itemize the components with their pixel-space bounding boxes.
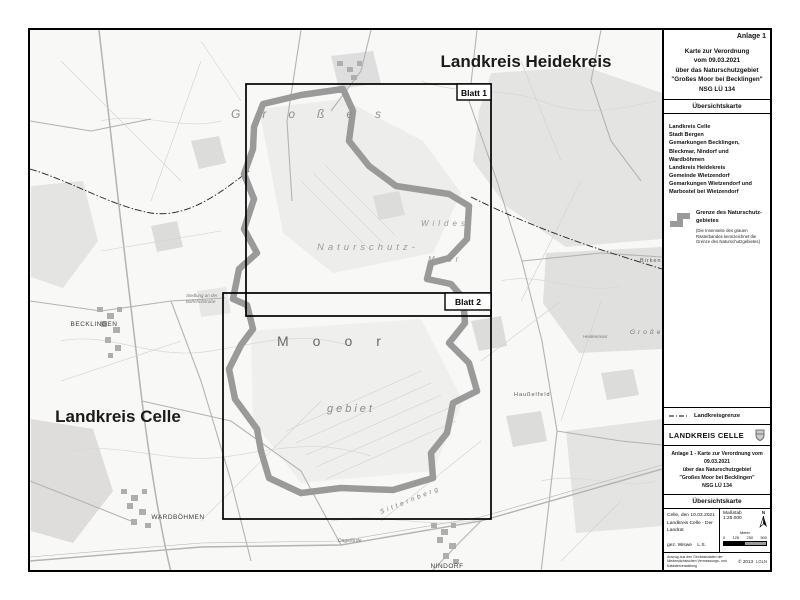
copyright-line: Niedersächsischen Vermessungs- und Katas… [667,559,735,568]
tick: 250 [747,535,754,540]
jurisdiction-line: Gemarkungen Becklingen, [669,139,765,147]
label-dagefoerde: Dageförde [338,538,362,544]
jurisdiction-line: Landkreis Celle [669,123,765,131]
signature: gez. Wiswe [667,542,692,549]
legend-label-line: Grenze des Naturschutz- [696,210,765,218]
forest-patches [31,51,662,543]
tick: 0 [723,535,725,540]
label-landkreis-heidekreis: Landkreis Heidekreis [440,52,611,71]
title-line: "Großes Moor bei Becklingen" [668,75,766,84]
lgln-logo-icon: LGLN [756,559,767,564]
title-line: über das Naturschutzgebiet [668,66,766,75]
nsg-boundary-symbol-icon [669,212,691,228]
jurisdiction-line: Stadt Bergen [669,131,765,139]
imprint-right: Maßstab 1:25.000 N Meter 0 125 250 500 [719,509,770,551]
copyright-strip: Auszug aus den Geobasisdaten der Nieders… [664,552,770,570]
legend-label-line: gebietes [696,218,765,226]
label-gebiet: gebiet [327,403,375,415]
legend-note: (Die Innenseite des grauen Rasterbandes … [696,228,765,245]
map-title: Karte zur Verordnung vom 09.03.2021 über… [668,47,766,94]
title-block-line: NSG LÜ 134 [666,482,768,490]
label-birken: Birken [640,258,662,264]
title-block-line: Anlage 1 - Karte zur Verordnung vom 09.0… [666,450,768,466]
imprint-office: Landkreis Celle - Der Landrat [667,520,716,535]
anlage-label: Anlage 1 [668,33,766,40]
title-block-line: "Großes Moor bei Becklingen" [666,474,768,482]
jurisdiction-line: Bleckmar, Nindorf und Wardböhmen [669,148,765,164]
section-title-uebersichtskarte: Übersichtskarte [664,99,770,113]
label-grosses-right: Großes [630,329,662,336]
landkreis-celle-crest-icon [755,429,765,441]
title-line: Karte zur Verordnung [668,47,766,56]
legend-panel: Anlage 1 Karte zur Verordnung vom 09.03.… [662,30,770,570]
blatt2-label: Blatt 2 [455,297,481,307]
copyright-text: Auszug aus den Geobasisdaten der Nieders… [667,555,735,568]
label-nindorf: NINDORF [430,563,463,570]
label-wardboehmen: WARDBÖHMEN [151,513,204,521]
jurisdiction-line: Gemeinde Wietzendorf [669,172,765,180]
tick: 500 [760,535,767,540]
imprint-block: Celle, den 10.03.2021 Landkreis Celle - … [664,508,770,551]
scalebar-black-segment [724,542,745,545]
label-grosses-top: Großes [231,107,403,121]
label-naturschutz: Naturschutz- [317,242,419,253]
imprint-date: Celle, den 10.03.2021 [667,512,716,519]
overview-map-canvas: Blatt 1 Blatt 2 Landkreis Heidekreis Lan… [30,30,662,570]
legend-landkreisgrenze: Landkreisgrenze [664,407,770,424]
settlement-becklingen [97,307,122,358]
map-sheet: Blatt 1 Blatt 2 Landkreis Heidekreis Lan… [28,28,772,572]
scalebar-ticks: 0 125 250 500 [723,535,767,540]
label-siedlung-line2: Bahnhofstraße [186,299,216,304]
title-block-line: über das Naturschutzgebiet [666,466,768,474]
scalebar-gray-segment [745,542,766,545]
north-arrow: N [759,511,768,529]
legend-nsg-boundary-text: Grenze des Naturschutz- gebietes (Die In… [696,210,765,245]
authority-name: LANDKREIS CELLE [669,431,744,440]
label-heidenmoor: Heidenmoor [583,334,608,339]
settlement-wardboehmen [121,489,151,528]
label-siedlung-line1: Siedlung an der [186,293,218,298]
scalebar [723,541,767,546]
landkreisgrenze-label: Landkreisgrenze [694,413,740,419]
copyright-year: © 2013 [738,559,753,564]
signature-row: gez. Wiswe L.S. [667,542,716,549]
label-landkreis-celle: Landkreis Celle [55,407,181,426]
jurisdiction-line: Landkreis Heidekreis [669,164,765,172]
panel-header: Anlage 1 Karte zur Verordnung vom 09.03.… [664,30,770,99]
imprint-left: Celle, den 10.03.2021 Landkreis Celle - … [664,509,719,551]
label-becklingen: BECKLINGEN [71,321,118,328]
title-line: NSG LÜ 134 [668,85,766,94]
title-block: Anlage 1 - Karte zur Verordnung vom 09.0… [664,445,770,494]
label-moor-small: Moor [428,255,462,264]
tick: 125 [733,535,740,540]
map-area: Blatt 1 Blatt 2 Landkreis Heidekreis Lan… [30,30,662,570]
jurisdiction-line: Marbostel bei Wietzendorf [669,188,765,196]
north-arrow-icon [759,516,768,528]
title-line: vom 09.03.2021 [668,56,766,65]
district-boundary-symbol-icon [669,413,689,419]
jurisdiction-list: Landkreis Celle Stadt Bergen Gemarkungen… [664,113,770,198]
blatt1-label: Blatt 1 [461,88,487,98]
jurisdiction-line: Gemarkungen Wietzendorf und [669,180,765,188]
panel-spacer [664,247,770,407]
section-title-uebersichtskarte-2: Übersichtskarte [664,494,770,508]
label-wildes: Wildes [421,219,469,228]
legend-nsg-boundary: Grenze des Naturschutz- gebietes (Die In… [664,198,770,247]
authority-row: LANDKREIS CELLE [664,424,770,445]
label-moor-big: Moor [277,333,405,349]
ls-mark: L.S. [697,542,706,549]
label-hausselfeld: Haußelfeld [514,392,551,398]
